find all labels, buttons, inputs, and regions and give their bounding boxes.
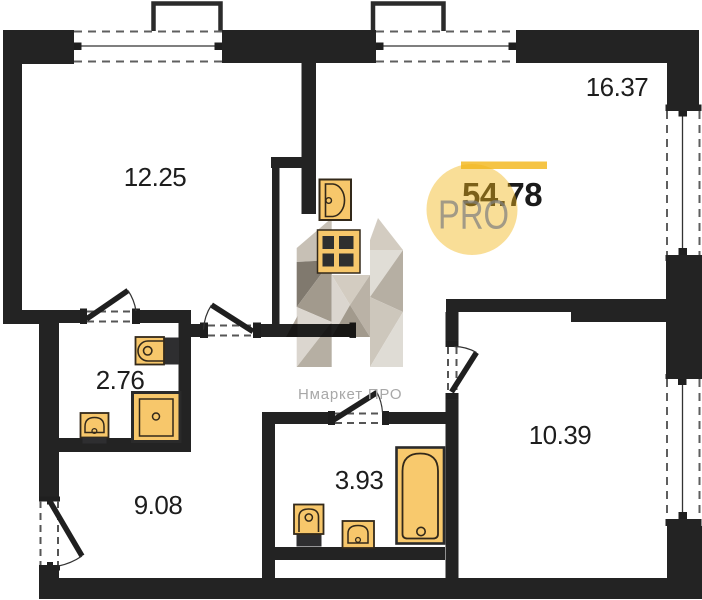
svg-text:12.25: 12.25 [124,162,187,192]
svg-text:16.37: 16.37 [586,72,649,102]
svg-text:9.08: 9.08 [134,490,183,520]
svg-text:Нмаркет ПРО: Нмаркет ПРО [298,386,402,403]
svg-text:10.39: 10.39 [529,420,592,450]
svg-text:3.93: 3.93 [335,465,384,495]
svg-text:PRO: PRO [438,191,509,237]
svg-text:2.76: 2.76 [96,365,145,395]
